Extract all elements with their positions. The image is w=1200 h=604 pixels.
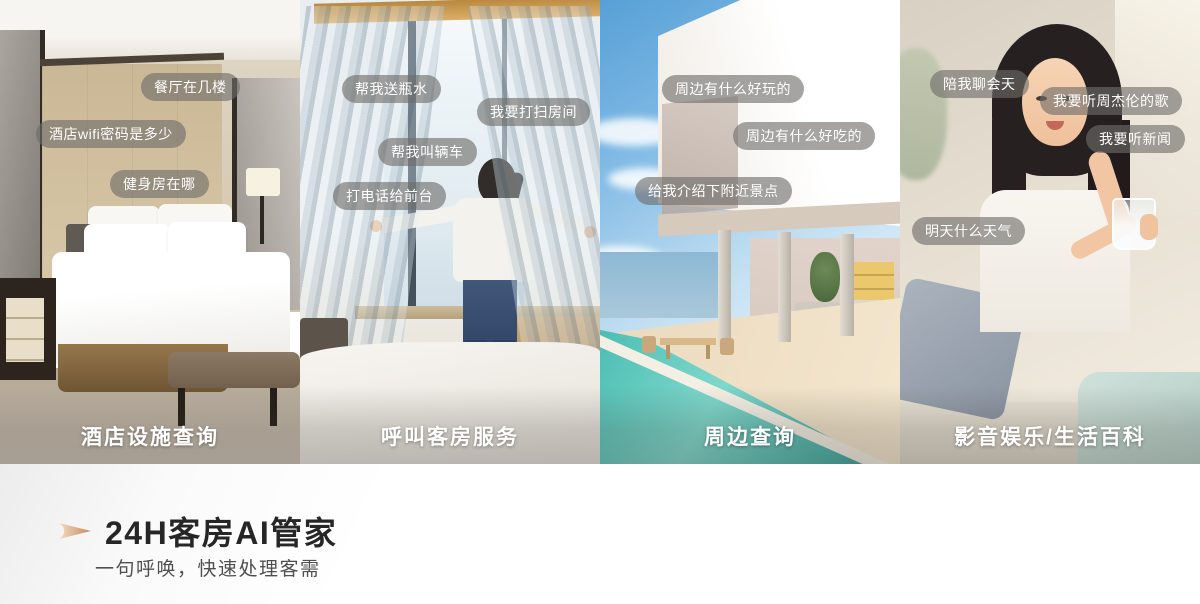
hand-shape <box>1140 214 1158 240</box>
panel-hotel-facilities: 餐厅在几楼 酒店wifi密码是多少 健身房在哪 酒店设施查询 <box>0 0 300 464</box>
footer-subtitle: 一句呼唤，快速处理客需 <box>95 554 321 581</box>
feature-panels-row: 餐厅在几楼 酒店wifi密码是多少 健身房在哪 酒店设施查询 <box>0 0 1200 464</box>
query-tag: 陪我聊会天 <box>930 70 1029 98</box>
footer-title: 24H客房AI管家 <box>105 508 337 554</box>
panel-caption: 酒店设施查询 <box>0 421 300 451</box>
pillar-shape <box>778 232 791 342</box>
promo-banner: 餐厅在几楼 酒店wifi密码是多少 健身房在哪 酒店设施查询 <box>0 0 1200 604</box>
query-tag: 酒店wifi密码是多少 <box>36 120 186 148</box>
query-tag: 我要听周杰伦的歌 <box>1040 87 1182 115</box>
panel-caption: 影音娱乐/生活百科 <box>900 421 1200 451</box>
chair-shape <box>642 336 656 353</box>
pillar-shape <box>718 230 731 348</box>
query-tag: 帮我送瓶水 <box>342 75 441 103</box>
query-tag: 我要听新闻 <box>1086 125 1185 153</box>
table-leg-shape <box>706 345 710 359</box>
query-tag: 明天什么天气 <box>912 217 1025 245</box>
query-tag: 餐厅在几楼 <box>141 73 240 101</box>
panel-room-service: 帮我送瓶水 我要打扫房间 帮我叫辆车 打电话给前台 呼叫客房服务 <box>300 0 600 464</box>
lamp-shade-shape <box>246 168 280 196</box>
panel-caption: 呼叫客房服务 <box>300 421 600 451</box>
panel-entertainment: 陪我聊会天 我要听周杰伦的歌 我要听新闻 明天什么天气 影音娱乐/生活百科 <box>900 0 1200 464</box>
chair-shape <box>720 338 734 355</box>
query-tag: 打电话给前台 <box>333 182 446 210</box>
shelf-shape <box>852 262 894 304</box>
table-leg-shape <box>666 345 670 359</box>
panel-caption: 周边查询 <box>600 421 900 451</box>
query-tag: 我要打扫房间 <box>477 98 590 126</box>
sea-shape <box>600 252 725 318</box>
footer-section: 24H客房AI管家 一句呼唤，快速处理客需 <box>0 464 1200 604</box>
plant-shape <box>810 252 840 302</box>
query-tag: 给我介绍下附近景点 <box>635 177 792 205</box>
query-tag: 健身房在哪 <box>110 170 209 198</box>
query-tag: 周边有什么好玩的 <box>662 75 804 103</box>
jeans-shape <box>463 280 517 346</box>
lamp-stem-shape <box>260 196 264 244</box>
pillar-shape <box>840 234 854 336</box>
query-tag: 周边有什么好吃的 <box>733 122 875 150</box>
panel-nearby-query: 周边有什么好玩的 周边有什么好吃的 给我介绍下附近景点 周边查询 <box>600 0 900 464</box>
arrow-right-icon <box>58 519 92 543</box>
table-shape <box>660 338 716 345</box>
query-tag: 帮我叫辆车 <box>378 138 477 166</box>
footer-heading-row: 24H客房AI管家 <box>58 508 337 554</box>
bench-shape <box>168 352 300 388</box>
drawers-shape <box>6 298 44 362</box>
